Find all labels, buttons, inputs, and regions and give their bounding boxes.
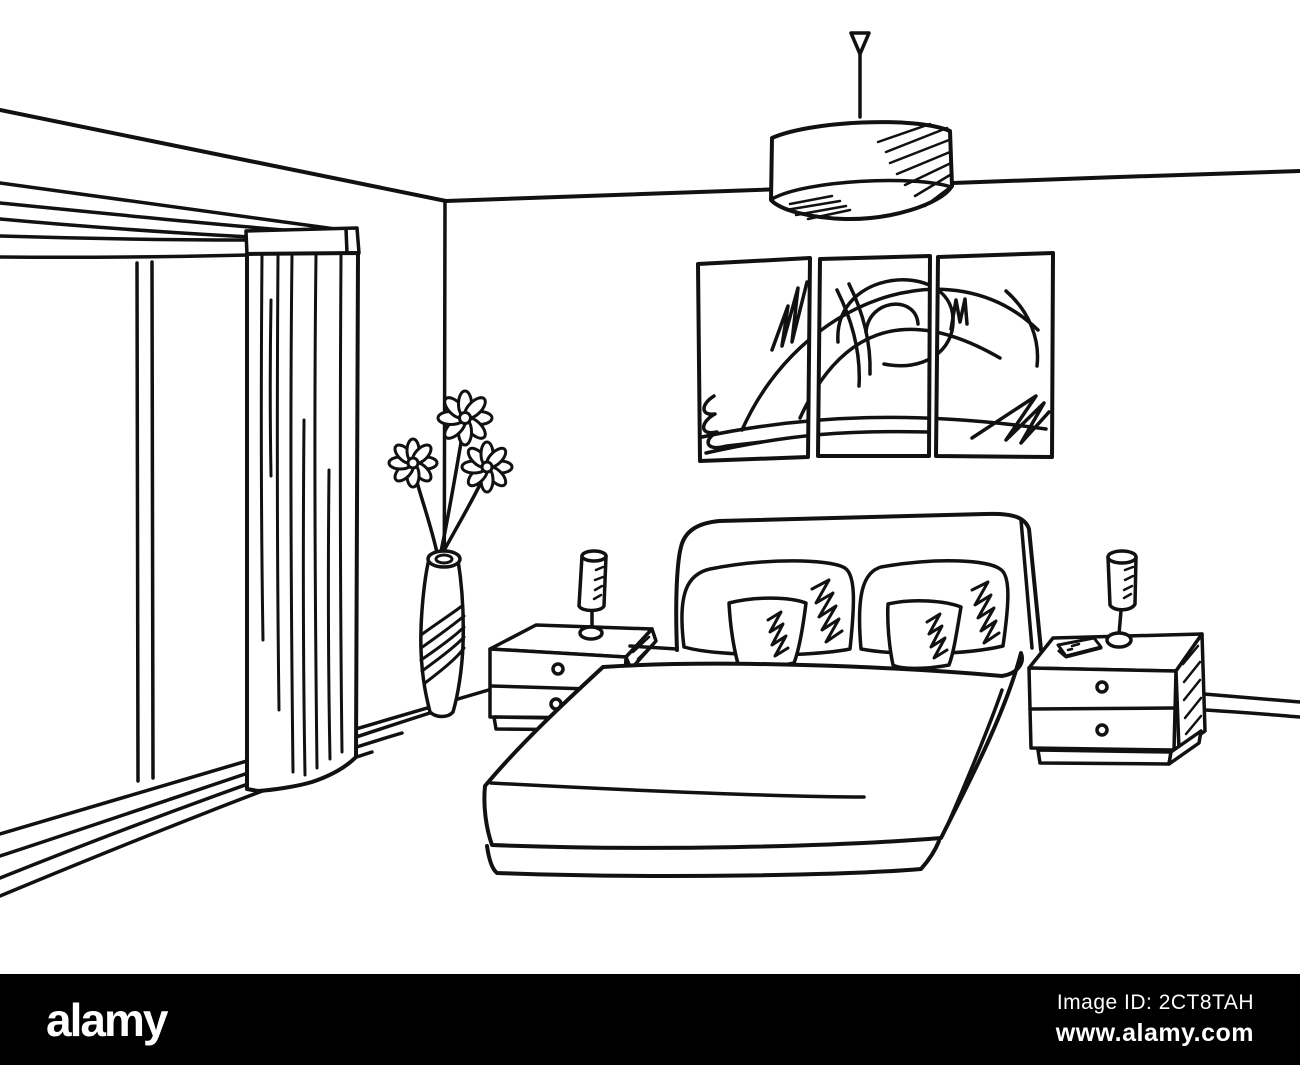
image-id-label: Image ID: 2CT8TAH bbox=[1056, 991, 1254, 1015]
curtain-rod-box bbox=[246, 228, 359, 255]
watermark-bar: alamy Image ID: 2CT8TAH www.alamy.com bbox=[0, 974, 1300, 1065]
table-lamp-right bbox=[1107, 551, 1136, 647]
nightstand-right bbox=[1029, 634, 1205, 764]
wall-art-triptych bbox=[698, 253, 1053, 461]
daisy-flower bbox=[438, 391, 492, 445]
art-panel-left bbox=[698, 258, 810, 461]
pillow-small-right bbox=[888, 601, 961, 669]
room-outline bbox=[0, 110, 1300, 717]
curtain bbox=[247, 253, 358, 791]
alamy-logo: alamy bbox=[46, 997, 166, 1043]
ceiling-lamp bbox=[771, 33, 952, 219]
bedroom-sketch bbox=[0, 0, 1300, 974]
daisy-flower bbox=[389, 439, 437, 487]
pillows bbox=[682, 561, 1008, 669]
vase-body bbox=[421, 556, 463, 716]
website-url: www.alamy.com bbox=[1056, 1019, 1254, 1048]
stock-image-page: alamy Image ID: 2CT8TAH www.alamy.com bbox=[0, 0, 1300, 1065]
footer-info: Image ID: 2CT8TAH www.alamy.com bbox=[1056, 991, 1254, 1048]
daisy-flower bbox=[462, 442, 512, 492]
pillow-small-left bbox=[729, 598, 806, 667]
